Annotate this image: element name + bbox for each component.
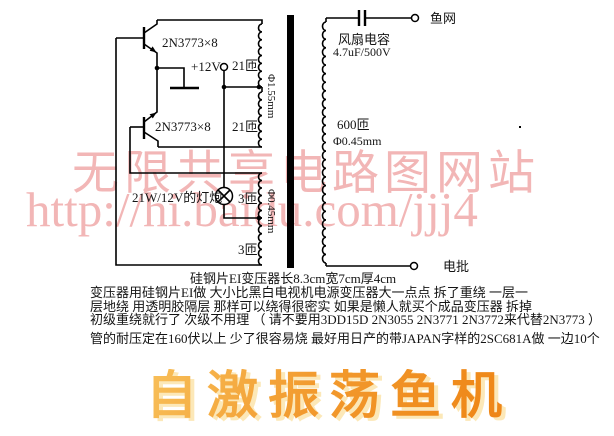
transistor-top-collector (144, 20, 157, 33)
push-pull-stage: 2N3773×8 2N3773×8 (116, 20, 262, 265)
lamp-output-wire (224, 205, 262, 219)
feedback-turns-top-label: 3匝 (238, 191, 258, 206)
build-notes: 变压器用硅钢片EI做 大小比黑白电视机电源变压器大一点点 拆了重绕 一层一 层地… (90, 286, 601, 345)
transistor-top-symbol (116, 20, 157, 68)
capacitor-value-label: 4.7uF/500V (333, 45, 391, 59)
secondary-winding (323, 22, 327, 263)
note-line: 层地绕 用透明胶隔层 那样可以绕得很密实 如果是懒人就买个成品变压器 拆掉 (90, 300, 601, 314)
top-rail-wire (157, 20, 262, 24)
primary-winding-bottom (259, 92, 263, 147)
core-size-caption: 硅钢片EI变压器长8.3cm宽7cm厚4cm (190, 271, 396, 286)
page-title: 自激振荡鱼机 自激振荡鱼机 (146, 354, 512, 428)
supply-label: +12V (191, 59, 221, 74)
fishnet-terminal-icon (412, 15, 419, 22)
note-line: 变压器用硅钢片EI做 大小比黑白电视机电源变压器大一点点 拆了重绕 一层一 (90, 286, 601, 300)
note-line: 初级重绕就行了 次级不用理 （ 请不要用3DD15D 2N3055 2N3771… (90, 313, 601, 327)
feedback-wire-dia-label: Φ0.45mm (265, 189, 277, 234)
junction-dot (222, 85, 227, 90)
electrode-terminal-label: 电批 (443, 259, 469, 274)
transistor-bottom-symbol (130, 68, 158, 147)
secondary-turns-label: 600匝 (337, 117, 370, 132)
feedback-winding-bottom (259, 218, 263, 265)
primary-wire-dia-label: Φ1.55mm (265, 74, 277, 119)
transistor-top-label: 2N3773×8 (162, 35, 218, 50)
emitter-arrow-icon (150, 46, 157, 52)
transistor-top-emitter (144, 44, 157, 68)
schematic-page: 无限共享电路图网站 http://hi.baidu.com/jjj4 (0, 0, 614, 436)
fishnet-terminal-label: 鱼网 (430, 11, 456, 26)
ink-speck (519, 126, 521, 128)
transformer-core (287, 15, 294, 268)
primary-turns-bottom-label: 21匝 (232, 119, 258, 134)
transistor-bottom-label: 2N3773×8 (155, 119, 211, 134)
feedback-winding-top (259, 173, 263, 218)
secondary-wire-dia-label: Φ0.45mm (333, 134, 382, 148)
feedback-turns-bottom-label: 3匝 (238, 242, 258, 257)
transistor-bottom-collector (144, 132, 158, 147)
lamp-label: 21W/12V的灯炮 (132, 190, 222, 205)
primary-winding-top (259, 24, 263, 87)
page-title-text: 自激振荡鱼机 (146, 369, 512, 425)
note-line: 管的耐压定在160伏以上 少了很容易烧 最好用日产的带JAPAN字样的2SC68… (90, 332, 601, 346)
primary-turns-top-label: 21匝 (232, 58, 258, 73)
ground-lead (157, 68, 184, 87)
electrode-terminal-icon (411, 263, 418, 270)
supply-terminal-icon (221, 64, 228, 71)
